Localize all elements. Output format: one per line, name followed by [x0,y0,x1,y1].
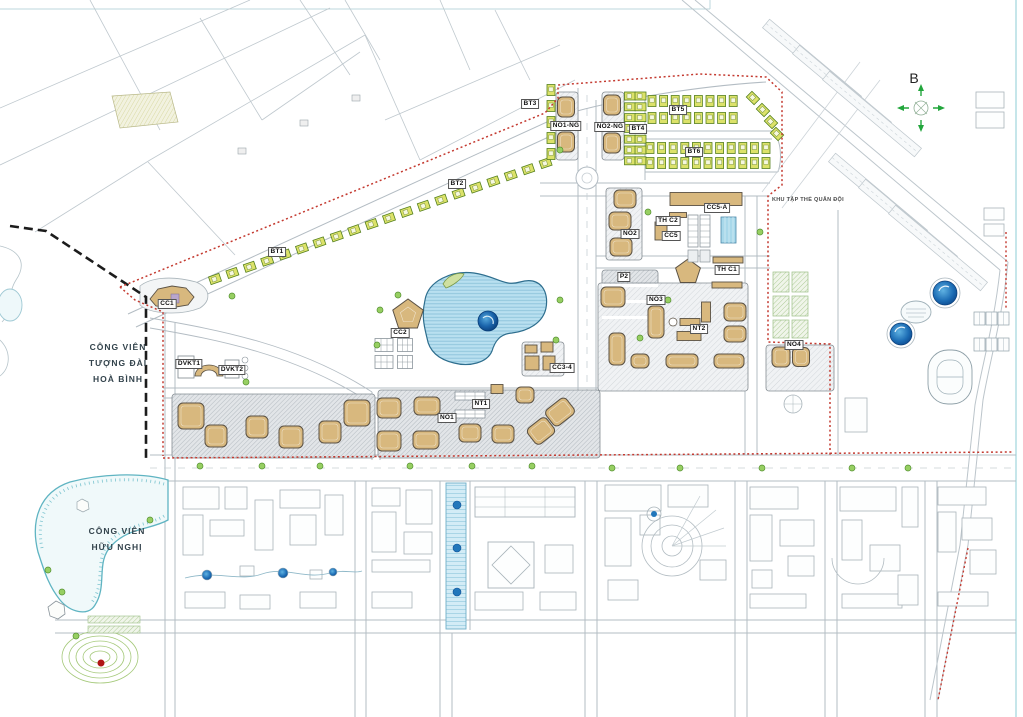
villa [750,158,758,169]
tree [374,342,380,348]
villa [718,113,726,124]
fountain-circle [933,281,957,305]
villa [706,113,714,124]
villa [469,182,482,193]
tree [529,463,535,469]
villa [660,113,668,124]
field-lines [0,0,575,255]
residential-tower [319,421,341,443]
residential-tower [772,347,790,367]
fountain-circle [890,323,912,345]
thc1-pentagon [676,259,701,283]
residential-tower [724,326,746,342]
tree [377,307,383,313]
tree [197,463,203,469]
public-building [702,302,711,322]
lake-island [478,311,498,331]
public-building [670,213,687,218]
villa [625,157,636,165]
residential-tower [516,387,534,403]
villa [750,143,758,154]
villa [635,103,646,111]
villa [764,115,777,128]
residential-tower [279,426,303,448]
residential-tower [631,354,649,368]
dvkt2-building [225,360,239,378]
tree [637,335,643,341]
tree [147,517,153,523]
villa [716,158,724,169]
residential-tower [558,97,575,117]
residential-tower [178,403,204,429]
tree [407,463,413,469]
tree [395,292,401,298]
public-building [541,342,553,352]
villa [692,143,700,154]
villa [625,103,636,111]
tree [45,567,51,573]
villa [504,170,517,181]
tree [905,465,911,471]
park-boundary-dashed [10,226,146,462]
villa [635,92,646,100]
master-plan-map: CC1BT1BT2BT3NO1-NGNO2-NGBT4BT5BT6CC5-ATH… [0,0,1023,717]
villa [718,96,726,107]
villa [658,143,666,154]
residential-tower [344,400,370,426]
villa [625,146,636,154]
public-building [491,385,503,394]
pavilion-hexagon [48,601,65,619]
residential-tower [604,95,621,115]
villa [635,135,646,143]
villa [658,158,666,169]
tree [677,465,683,471]
villa [683,113,691,124]
tree [469,463,475,469]
residential-tower [793,348,810,367]
map-drawing [0,0,1023,717]
tree [557,297,563,303]
villa [635,157,646,165]
villa [729,113,737,124]
tree [243,379,249,385]
villa [522,164,535,175]
villa [756,103,769,116]
residential-tower [459,424,481,442]
villa [704,158,712,169]
residential-tower [492,425,514,443]
public-building [677,332,701,341]
residential-tower [714,354,744,368]
villa [739,143,747,154]
public-building [670,193,742,206]
villa [681,158,689,169]
villa [762,158,770,169]
villa [417,200,430,211]
villa [547,85,555,96]
residential-tower [601,287,625,307]
public-building [712,282,742,288]
residential-tower [648,306,664,338]
villa [625,114,636,122]
residential-tower [609,212,631,230]
villa [729,96,737,107]
villa [646,158,654,169]
residential-tower [377,431,401,451]
residential-tower [609,333,625,365]
residential-tower [414,397,440,415]
residential-tower [377,398,401,418]
public-building [525,345,537,353]
compass [897,84,945,132]
villa [226,267,239,278]
villa [635,124,646,132]
villa [648,96,656,107]
military-green [773,272,808,338]
villa [452,188,465,199]
villa [681,143,689,154]
swimming-pool [721,217,736,243]
dvkt1-building [178,356,194,378]
residential-tower [604,133,621,153]
villa [487,176,500,187]
villa [348,225,361,236]
residential-tower [413,431,439,449]
cc2-pentagon [393,299,423,328]
terrain-left [0,246,22,376]
tree [757,229,763,235]
residential-tower [205,425,227,447]
villa [660,96,668,107]
villa [330,231,343,242]
tree [609,465,615,471]
tree [849,465,855,471]
residential-tower [246,416,268,438]
villa [704,143,712,154]
villa [669,158,677,169]
villa [313,237,326,248]
tree [665,297,671,303]
residential-tower [724,303,746,321]
villa [669,143,677,154]
villa [671,113,679,124]
tree [259,463,265,469]
villa [692,158,700,169]
villa [727,143,735,154]
villa [635,146,646,154]
villa [243,261,256,272]
tree [553,337,559,343]
villa [648,113,656,124]
villa [400,206,413,217]
public-building [680,319,700,326]
public-building [713,257,743,263]
residential-tower [666,354,698,368]
villa [635,114,646,122]
tree [229,293,235,299]
villa [547,117,555,128]
public-building [525,356,539,370]
villa [625,135,636,143]
villa [295,243,308,254]
villa [727,158,735,169]
tree [317,463,323,469]
villa [625,92,636,100]
villa [278,249,291,260]
villa [694,113,702,124]
tree [557,147,563,153]
park-lake [35,475,168,612]
villa [762,143,770,154]
villa [208,273,221,284]
villa [547,149,555,160]
villa [706,96,714,107]
villa [671,96,679,107]
villa [694,96,702,107]
villa [382,212,395,223]
public-building [655,222,667,240]
residential-tower [610,238,632,256]
tree [759,465,765,471]
villa [646,143,654,154]
tree [59,589,65,595]
villa [739,158,747,169]
villa [547,101,555,112]
villa [435,194,448,205]
tree [73,633,79,639]
villa [716,143,724,154]
villa [547,133,555,144]
tree [645,209,651,215]
villa [683,96,691,107]
villa [746,91,759,104]
residential-tower [614,190,636,208]
public-building [543,356,555,370]
villa [625,124,636,132]
park-monument-dot [98,660,105,667]
